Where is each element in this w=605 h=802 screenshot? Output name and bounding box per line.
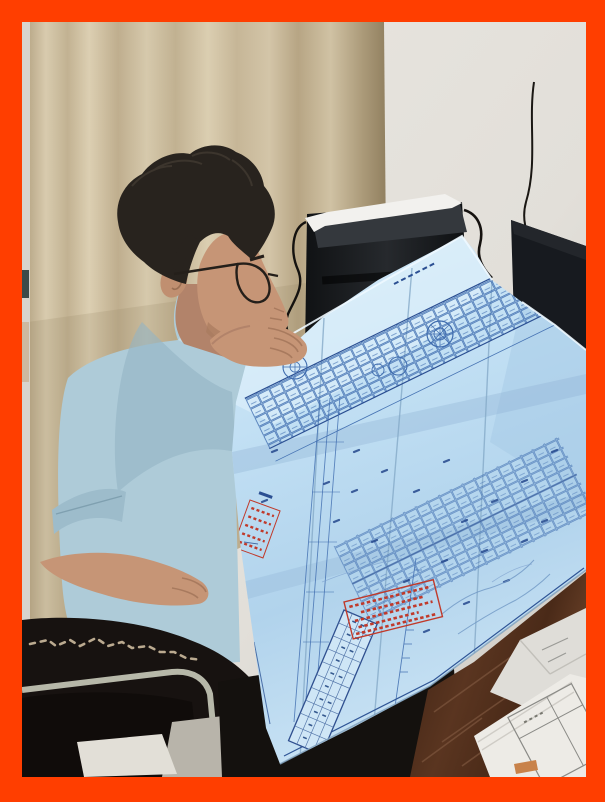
wall-fixture bbox=[22, 270, 29, 298]
photo-scene bbox=[22, 22, 586, 777]
orange-photo-frame: A man with short dark hair and glasses, … bbox=[0, 0, 605, 802]
photograph bbox=[22, 22, 586, 777]
wall-sliver-warm bbox=[22, 322, 29, 382]
photo-caption: A man with short dark hair and glasses, … bbox=[0, 0, 1, 1]
